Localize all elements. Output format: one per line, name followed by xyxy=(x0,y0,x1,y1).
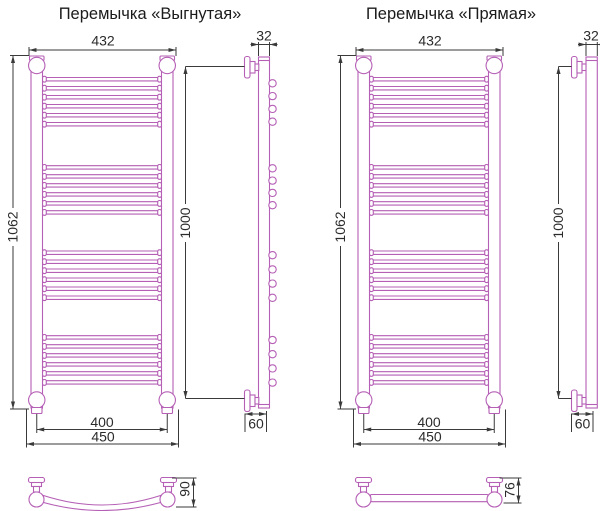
dim-450-label: 450 xyxy=(91,429,115,445)
dim-60-label: 60 xyxy=(248,416,264,432)
technical-drawing-page: Перемычка «Выгнутая» 432 1062 xyxy=(0,0,600,511)
technical-drawing-canvas: Перемычка «Выгнутая» 432 1062 xyxy=(0,0,600,511)
wall-bracket-top xyxy=(572,57,578,79)
wall-bracket-bottom xyxy=(245,390,251,412)
straight-title: Перемычка «Прямая» xyxy=(366,5,536,23)
wall-bracket-bottom xyxy=(572,390,578,412)
dim-1000-label: 1000 xyxy=(550,207,566,238)
dim-32-label: 32 xyxy=(256,28,272,44)
dim-76-label: 76 xyxy=(502,482,518,498)
dim-1062-label: 1062 xyxy=(5,211,21,242)
top-fitting xyxy=(159,57,175,73)
dim-450-label: 450 xyxy=(418,429,442,445)
top-fitting xyxy=(356,57,372,73)
bottom-fitting xyxy=(159,392,175,408)
dim-432-label: 432 xyxy=(91,33,115,49)
dim-90-label: 90 xyxy=(177,481,193,497)
bottom-fitting xyxy=(29,392,45,408)
straight-tube xyxy=(371,495,489,502)
top-fitting xyxy=(29,57,45,73)
bottom-fitting xyxy=(356,392,372,408)
curved-title: Перемычка «Выгнутая» xyxy=(59,5,242,23)
wall-bracket-top xyxy=(245,57,251,79)
dim-432-label: 432 xyxy=(418,33,442,49)
top-fitting xyxy=(486,57,502,73)
dim-1000-label: 1000 xyxy=(177,207,193,238)
bottom-fitting xyxy=(486,392,502,408)
dim-60-label: 60 xyxy=(575,416,591,432)
dim-32-label: 32 xyxy=(583,28,599,44)
dim-1062-label: 1062 xyxy=(332,211,348,242)
background xyxy=(0,0,600,511)
